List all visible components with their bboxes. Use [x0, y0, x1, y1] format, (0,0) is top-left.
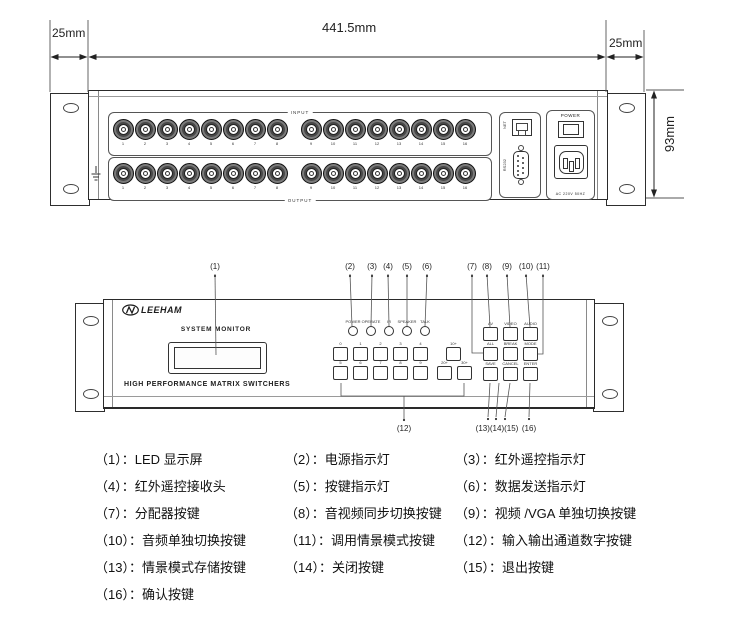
function-key: CANCEL — [503, 361, 518, 381]
legend-item: （10）：音频单独切换按键 — [95, 533, 285, 560]
bnc-connector: 3 — [157, 119, 177, 146]
led-lamp — [384, 326, 394, 336]
legend-item: （8）：音视频同步切换按键 — [285, 506, 455, 533]
key-button — [413, 366, 428, 380]
bnc-connector: 12 — [367, 119, 387, 146]
key-button — [353, 366, 368, 380]
key-label: ALL — [487, 341, 494, 346]
callout-16: (16) — [522, 424, 536, 433]
bnc-connector: 2 — [135, 163, 155, 190]
led-indicator: TALK — [416, 319, 434, 336]
function-key: BREAK — [503, 341, 518, 361]
digit-key: 9 — [413, 360, 428, 380]
mounting-hole — [602, 389, 618, 399]
key-label: 30+ — [461, 360, 468, 365]
bnc-ring — [323, 119, 344, 140]
bnc-pin — [143, 127, 148, 132]
legend-item: （7）：分配器按键 — [95, 506, 285, 533]
bnc-number: 8 — [276, 185, 278, 190]
bnc-connector: 8 — [267, 119, 287, 146]
key-label: CANCEL — [502, 361, 518, 366]
power-label: POWER — [561, 113, 581, 118]
bnc-ring — [267, 163, 288, 184]
bnc-connector: 5 — [201, 119, 221, 146]
bnc-ring — [201, 163, 222, 184]
dim-total-width: 441.5mm — [322, 20, 376, 35]
front-right-rack-ear — [593, 303, 624, 412]
panel-edge-line — [89, 96, 607, 97]
power-switch-rocker — [563, 124, 579, 135]
led-label: IR — [387, 319, 391, 324]
bnc-number: 3 — [166, 185, 168, 190]
bnc-connector: 16 — [455, 163, 475, 190]
callout-3: (3) — [367, 262, 377, 271]
callout-9: (9) — [502, 262, 512, 271]
key-button — [333, 366, 348, 380]
mounting-hole — [63, 184, 79, 194]
bnc-connector: 11 — [345, 119, 365, 146]
key-label: 2 — [379, 341, 381, 346]
ac-rating-label: AC 220V 50HZ — [556, 192, 586, 196]
bnc-number: 2 — [144, 141, 146, 146]
bnc-ring — [389, 163, 410, 184]
fn-key-row-2: ALL BREAK MODE — [483, 341, 538, 361]
bnc-number: 14 — [419, 141, 423, 146]
bnc-pin — [231, 127, 236, 132]
bnc-pin — [331, 127, 336, 132]
dim-left-margin: 25mm — [52, 26, 85, 40]
key-label: 10+ — [450, 341, 457, 346]
technical-diagram: 25mm 441.5mm 25mm 93mm INPUT — [0, 0, 740, 622]
bnc-number: 13 — [397, 185, 401, 190]
panel-edge-line — [98, 91, 99, 199]
bnc-ring — [157, 163, 178, 184]
bnc-pin — [331, 171, 336, 176]
led-lamp — [420, 326, 430, 336]
output-label: OUTPUT — [285, 198, 316, 203]
digit-key: 4 — [413, 341, 428, 361]
digit-key: 5 — [333, 360, 348, 380]
key-label: 7 — [379, 360, 381, 365]
bnc-ring — [135, 163, 156, 184]
bnc-pin — [187, 171, 192, 176]
bnc-ring — [301, 119, 322, 140]
key-button — [353, 347, 368, 361]
power-switch — [558, 121, 584, 138]
bnc-connector: 10 — [323, 119, 343, 146]
bnc-pin — [165, 127, 170, 132]
rj45-clip — [518, 130, 526, 136]
legend-item: （6）：数据发送指示灯 — [455, 479, 720, 506]
bnc-number: 2 — [144, 185, 146, 190]
digit-key: 6 — [353, 360, 368, 380]
bnc-ring — [433, 163, 454, 184]
key-label: 4 — [419, 341, 421, 346]
plus30-key: 30+ — [457, 360, 472, 380]
panel-edge-line — [112, 300, 113, 407]
bnc-number: 1 — [122, 185, 124, 190]
legend-item: （4）：红外遥控接收头 — [95, 479, 285, 506]
bnc-number: 5 — [210, 141, 212, 146]
callout-7: (7) — [467, 262, 477, 271]
rs232-label: RS232 — [502, 159, 507, 171]
bnc-ring — [433, 119, 454, 140]
bnc-ring — [113, 119, 134, 140]
key-button — [503, 367, 518, 381]
key-button — [503, 327, 518, 341]
function-key: SAVE — [483, 361, 498, 381]
callout-11: (11) — [536, 262, 550, 271]
bnc-pin — [121, 127, 126, 132]
bnc-pin — [441, 171, 446, 176]
db9-screw — [518, 179, 524, 185]
digit-key: 8 — [393, 360, 408, 380]
rs232-port — [513, 151, 529, 179]
brand-logo: LEEHAM — [122, 304, 182, 316]
bnc-pin — [209, 171, 214, 176]
bnc-ring — [411, 119, 432, 140]
bnc-connector: 1 — [113, 163, 133, 190]
bnc-number: 10 — [331, 141, 335, 146]
led-indicator: OPERATE — [362, 319, 380, 336]
key-button — [523, 367, 538, 381]
ac-pin — [563, 158, 568, 169]
key-label: 20+ — [441, 360, 448, 365]
bnc-connector: 16 — [455, 119, 475, 146]
legend-item: （9）：视频 /VGA 单独切换按键 — [455, 506, 720, 533]
bnc-connector: 4 — [179, 163, 199, 190]
led-indicator: POWER — [344, 319, 362, 336]
bnc-connector: 7 — [245, 119, 265, 146]
digit-key: 0 — [333, 341, 348, 361]
bnc-number: 11 — [353, 141, 357, 146]
key-label: SAVE — [485, 361, 495, 366]
digit-key: 3 — [393, 341, 408, 361]
panel-title: HIGH PERFORMANCE MATRIX SWITCHERS — [124, 381, 290, 388]
bnc-connector: 1 — [113, 119, 133, 146]
key-button — [413, 347, 428, 361]
dim-right-margin: 25mm — [609, 36, 642, 50]
panel-edge-line — [586, 300, 587, 407]
bnc-ring — [323, 163, 344, 184]
legend-item: （13）：情景模式存储按键 — [95, 560, 285, 587]
bnc-number: 5 — [210, 185, 212, 190]
led-label: TALK — [420, 319, 430, 324]
ac-pin — [575, 158, 580, 169]
bnc-number: 11 — [353, 185, 357, 190]
ac-pin — [569, 161, 574, 172]
lcd-screen — [174, 347, 261, 369]
front-left-rack-ear — [75, 303, 105, 412]
bnc-connector: 5 — [201, 163, 221, 190]
mounting-hole — [619, 103, 635, 113]
bnc-connector: 2 — [135, 119, 155, 146]
bnc-ring — [245, 163, 266, 184]
bnc-number: 8 — [276, 141, 278, 146]
bnc-number: 14 — [419, 185, 423, 190]
mounting-hole — [619, 184, 635, 194]
output-bnc-row: 1 2 3 — [113, 163, 475, 190]
key-label: 6 — [359, 360, 361, 365]
bnc-ring — [179, 163, 200, 184]
bnc-ring — [455, 163, 476, 184]
rear-right-rack-ear — [606, 93, 646, 206]
led-label: POWER — [345, 319, 360, 324]
bnc-connector: 14 — [411, 163, 431, 190]
ground-icon — [90, 166, 102, 182]
bnc-ring — [157, 119, 178, 140]
bnc-connector: 6 — [223, 119, 243, 146]
bnc-connector: 7 — [245, 163, 265, 190]
function-key: ALL — [483, 341, 498, 361]
mounting-hole — [83, 316, 99, 326]
rear-left-rack-ear — [50, 93, 90, 206]
key-label: BREAK — [504, 341, 518, 346]
digit-key-row-1: 0 1 2 3 4 — [333, 341, 428, 361]
bnc-number: 15 — [441, 185, 445, 190]
bnc-number: 7 — [254, 141, 256, 146]
bnc-ring — [345, 119, 366, 140]
bnc-ring — [301, 163, 322, 184]
bnc-pin — [143, 171, 148, 176]
bnc-connector: 12 — [367, 163, 387, 190]
display-title: SYSTEM MONITOR — [160, 326, 272, 333]
key-button — [483, 347, 498, 361]
callout-4: (4) — [383, 262, 393, 271]
legend-item: （14）：关闭按键 — [285, 560, 455, 587]
function-key: ENTER — [523, 361, 538, 381]
bnc-number: 16 — [463, 185, 467, 190]
key-button — [523, 327, 538, 341]
bnc-pin — [397, 127, 402, 132]
fn-key-row-1: AV VIDEO AUDIO — [483, 321, 538, 341]
bnc-ring — [345, 163, 366, 184]
led-indicator-row: POWER OPERATE IR SPEAKER TALK — [344, 319, 434, 336]
callout-8: (8) — [482, 262, 492, 271]
key-label: 9 — [419, 360, 421, 365]
panel-edge-line — [597, 91, 598, 199]
bnc-pin — [375, 127, 380, 132]
callout-1: (1) — [210, 262, 220, 271]
plus20-key: 20+ — [437, 360, 452, 380]
bnc-number: 6 — [232, 141, 234, 146]
net-label: NET — [502, 121, 507, 129]
bnc-connector: 13 — [389, 163, 409, 190]
key-button — [333, 347, 348, 361]
input-bnc-row: 1 2 3 — [113, 119, 475, 146]
ac-inlet — [554, 145, 588, 179]
led-lamp — [366, 326, 376, 336]
key-label: 3 — [399, 341, 401, 346]
led-lamp — [402, 326, 412, 336]
power-group: POWER AC 220V 50HZ — [546, 110, 595, 200]
bnc-ring — [245, 119, 266, 140]
bnc-pin — [309, 171, 314, 176]
bnc-ring — [455, 119, 476, 140]
key-label: 0 — [339, 341, 341, 346]
bnc-ring — [113, 163, 134, 184]
bnc-number: 6 — [232, 185, 234, 190]
bnc-pin — [353, 127, 358, 132]
mounting-hole — [83, 389, 99, 399]
key-label: AV — [488, 321, 493, 326]
key-label: ENTER — [524, 361, 538, 366]
bnc-ring — [135, 119, 156, 140]
bnc-pin — [375, 171, 380, 176]
bnc-ring — [223, 163, 244, 184]
bnc-number: 16 — [463, 141, 467, 146]
bnc-number: 7 — [254, 185, 256, 190]
bnc-connector: 6 — [223, 163, 243, 190]
key-label: VIDEO — [504, 321, 516, 326]
digit-key: 2 — [373, 341, 388, 361]
plus10-key: 10+ — [446, 341, 461, 361]
key-button — [393, 347, 408, 361]
led-label: SPEAKER — [398, 319, 417, 324]
bnc-pin — [253, 127, 258, 132]
bnc-pin — [419, 127, 424, 132]
led-indicator: IR — [380, 319, 398, 336]
callout-12: (12) — [397, 424, 411, 433]
callout-2: (2) — [345, 262, 355, 271]
bnc-ring — [411, 163, 432, 184]
mounting-hole — [602, 316, 618, 326]
led-lamp — [348, 326, 358, 336]
bnc-pin — [209, 127, 214, 132]
fn-key-row-3: SAVE CANCEL ENTER — [483, 361, 538, 381]
bnc-pin — [231, 171, 236, 176]
bnc-connector: 11 — [345, 163, 365, 190]
key-button — [483, 327, 498, 341]
legend-item: （12）：输入输出通道数字按键 — [455, 533, 720, 560]
callout-10: (10) — [519, 262, 533, 271]
mounting-hole — [63, 103, 79, 113]
bnc-number: 1 — [122, 141, 124, 146]
key-button — [457, 366, 472, 380]
callout-13-14-15: (13)(14)(15) — [476, 424, 519, 433]
bnc-pin — [121, 171, 126, 176]
bnc-connector: 13 — [389, 119, 409, 146]
key-label: 1 — [359, 341, 361, 346]
callout-5: (5) — [402, 262, 412, 271]
bnc-number: 3 — [166, 141, 168, 146]
key-label: AUDIO — [524, 321, 537, 326]
dim-height: 93mm — [662, 116, 677, 152]
bnc-connector: 9 — [301, 119, 321, 146]
comm-port-group: NET RS232 — [499, 112, 541, 198]
bnc-connector: 4 — [179, 119, 199, 146]
bnc-pin — [419, 171, 424, 176]
led-indicator: SPEAKER — [398, 319, 416, 336]
legend: （1）：LED 显示屏 （2）：电源指示灯 （3）：红外遥控指示灯 （4）：红外… — [95, 452, 720, 614]
key-button — [437, 366, 452, 380]
legend-item: （5）：按键指示灯 — [285, 479, 455, 506]
key-button — [523, 347, 538, 361]
bnc-ring — [367, 119, 388, 140]
bnc-pin — [275, 127, 280, 132]
bnc-pin — [309, 127, 314, 132]
legend-item: （1）：LED 显示屏 — [95, 452, 285, 479]
bnc-connector: 15 — [433, 163, 453, 190]
net-port — [512, 119, 532, 136]
bnc-ring — [179, 119, 200, 140]
bnc-pin — [187, 127, 192, 132]
bnc-connector: 15 — [433, 119, 453, 146]
brand-name: LEEHAM — [141, 305, 182, 315]
function-key: VIDEO — [503, 321, 518, 341]
legend-item: （3）：红外遥控指示灯 — [455, 452, 720, 479]
digit-key-row-2: 5 6 7 8 9 — [333, 360, 428, 380]
brand-logo-icon — [122, 304, 139, 316]
bnc-connector: 14 — [411, 119, 431, 146]
bnc-pin — [397, 171, 402, 176]
digit-key: 7 — [373, 360, 388, 380]
bnc-number: 13 — [397, 141, 401, 146]
key-label: MODE — [525, 341, 537, 346]
bnc-pin — [353, 171, 358, 176]
bnc-ring — [389, 119, 410, 140]
key-button — [483, 367, 498, 381]
bnc-connector: 10 — [323, 163, 343, 190]
legend-item: （11）：调用情景模式按键 — [285, 533, 455, 560]
legend-item: （16）：确认按键 — [95, 587, 285, 614]
legend-item: （15）：退出按键 — [455, 560, 720, 587]
digit-key: 1 — [353, 341, 368, 361]
bnc-number: 15 — [441, 141, 445, 146]
bnc-connector: 3 — [157, 163, 177, 190]
bnc-ring — [367, 163, 388, 184]
bnc-number: 9 — [310, 141, 312, 146]
bnc-pin — [253, 171, 258, 176]
bnc-number: 4 — [188, 141, 190, 146]
led-label: OPERATE — [362, 319, 381, 324]
bnc-ring — [201, 119, 222, 140]
bnc-number: 9 — [310, 185, 312, 190]
bnc-pin — [441, 127, 446, 132]
function-key: AUDIO — [523, 321, 538, 341]
bnc-number: 10 — [331, 185, 335, 190]
function-key: MODE — [523, 341, 538, 361]
callout-6: (6) — [422, 262, 432, 271]
panel-groove-line — [104, 396, 594, 397]
bnc-number: 12 — [375, 141, 379, 146]
key-button — [373, 347, 388, 361]
bnc-connector: 9 — [301, 163, 321, 190]
function-key: AV — [483, 321, 498, 341]
bnc-number: 12 — [375, 185, 379, 190]
bnc-number: 4 — [188, 185, 190, 190]
bnc-pin — [463, 171, 468, 176]
bnc-ring — [267, 119, 288, 140]
key-button — [503, 347, 518, 361]
bnc-pin — [275, 171, 280, 176]
key-label: 8 — [399, 360, 401, 365]
input-label: INPUT — [288, 110, 313, 115]
key-button — [373, 366, 388, 380]
bnc-connector: 8 — [267, 163, 287, 190]
bnc-pin — [463, 127, 468, 132]
legend-item: （2）：电源指示灯 — [285, 452, 455, 479]
key-button — [446, 347, 461, 361]
key-button — [393, 366, 408, 380]
key-label: 5 — [339, 360, 341, 365]
bnc-ring — [223, 119, 244, 140]
bnc-pin — [165, 171, 170, 176]
